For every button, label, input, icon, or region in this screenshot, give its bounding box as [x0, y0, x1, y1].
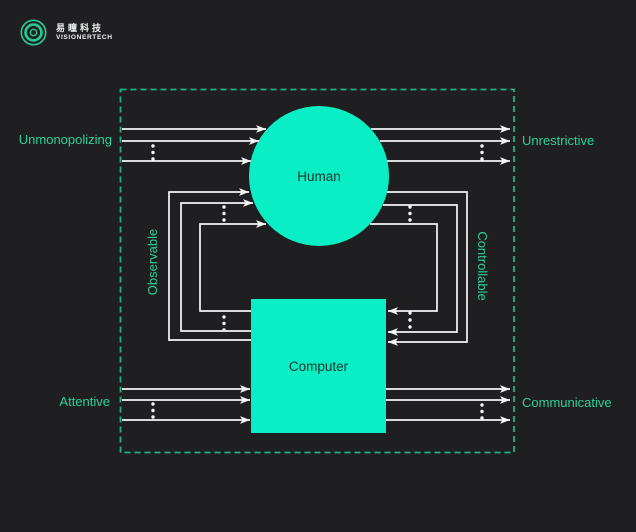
label-unrestrictive: Unrestrictive	[522, 133, 594, 148]
arrow-loop	[200, 224, 266, 311]
label-observable: Observable	[145, 229, 160, 295]
arrow-loop	[387, 192, 467, 342]
computer-node-label: Computer	[289, 359, 349, 374]
human-node: Human	[249, 106, 389, 246]
label-communicative: Communicative	[522, 395, 612, 410]
visionertech-eye-icon	[19, 18, 48, 47]
communicative-arrows	[386, 389, 510, 420]
arrow-loop	[370, 224, 437, 311]
human-node-label: Human	[297, 169, 341, 184]
label-attentive: Attentive	[59, 394, 110, 409]
ellipsis-dots-controllable-top	[408, 205, 411, 221]
ellipsis-dots-bottom-right	[480, 403, 483, 419]
unrestrictive-arrows	[371, 129, 510, 161]
label-controllable: Controllable	[475, 231, 490, 300]
brand-text: 易瞳科技 VISIONERTECH	[56, 23, 113, 42]
ellipsis-dots-observable-bottom	[222, 315, 225, 331]
unmonopolizing-arrows	[122, 129, 266, 161]
brand-logo: 易瞳科技 VISIONERTECH	[19, 18, 113, 47]
computer-node: Computer	[251, 299, 386, 433]
attentive-arrows	[122, 389, 250, 420]
brand-name-zh: 易瞳科技	[56, 23, 113, 34]
label-unmonopolizing: Unmonopolizing	[19, 132, 112, 147]
ellipsis-dots-bottom-left	[151, 402, 154, 418]
ellipsis-dots-top-right	[480, 144, 483, 160]
ellipsis-dots-top-left	[151, 144, 154, 160]
brand-name-en: VISIONERTECH	[56, 34, 113, 42]
ellipsis-dots-controllable-bottom	[408, 311, 411, 328]
slide-canvas: 易瞳科技 VISIONERTECH Human Computer	[0, 0, 636, 532]
ellipsis-dots-observable-top	[222, 205, 225, 221]
hci-loop-diagram: Human Computer	[0, 0, 636, 532]
